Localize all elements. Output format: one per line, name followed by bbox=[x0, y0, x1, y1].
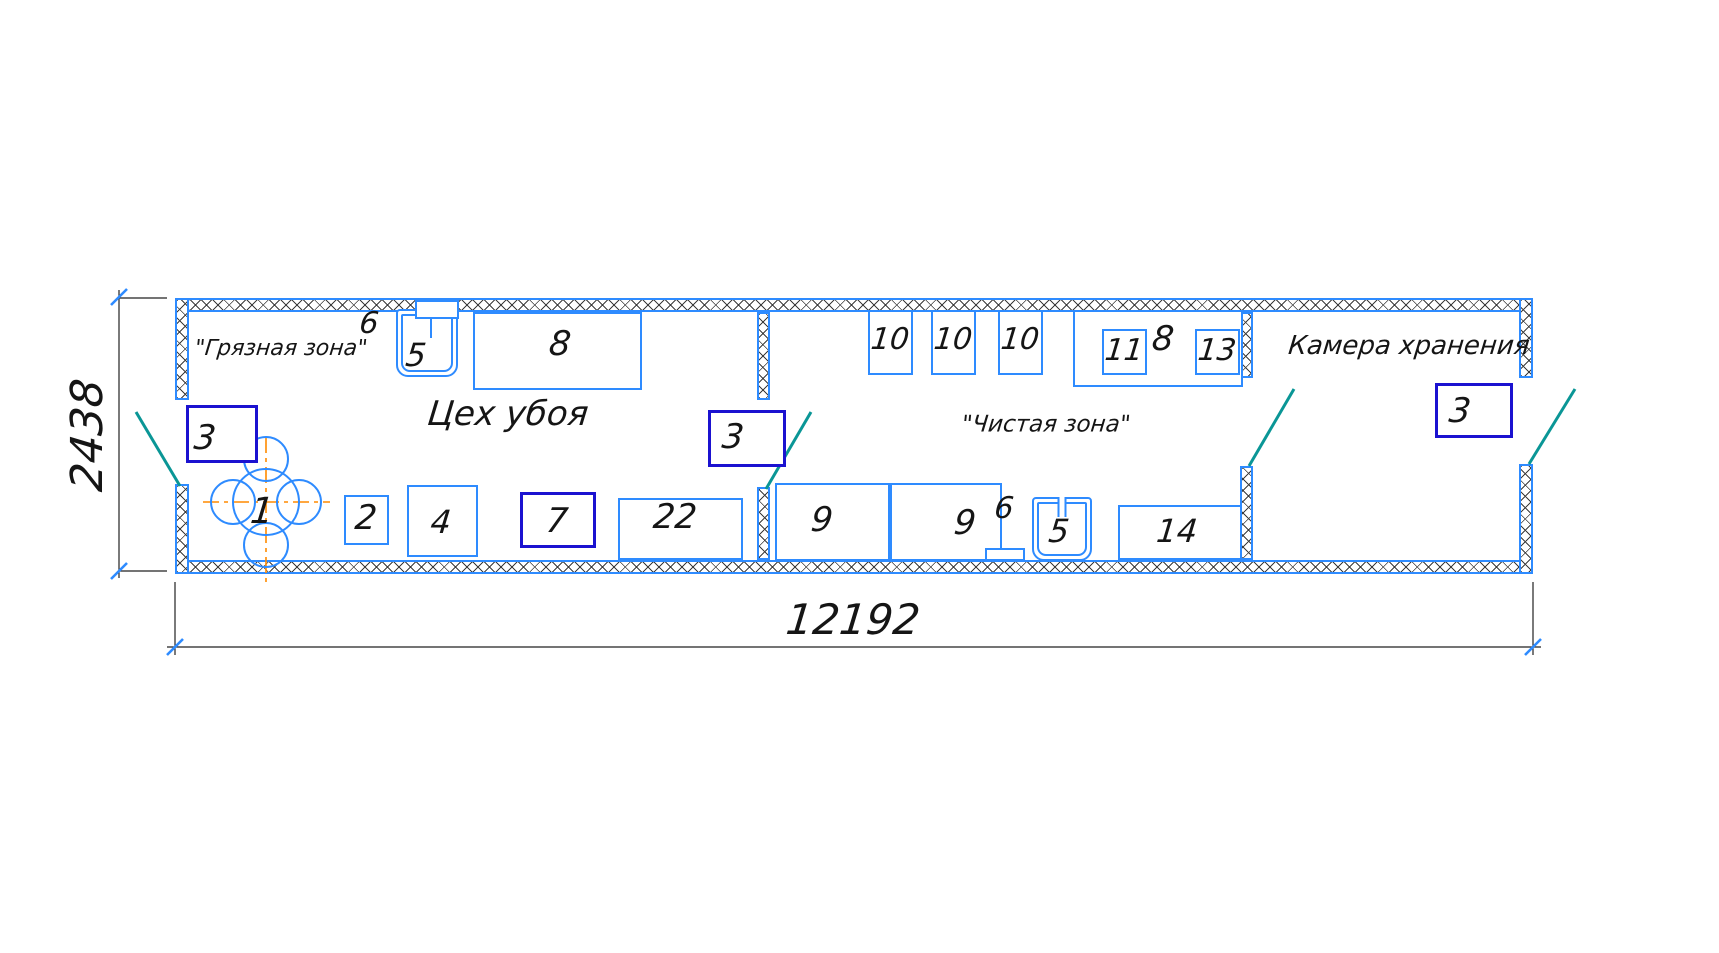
equipment-label-11: 11 bbox=[1103, 336, 1144, 366]
equipment-label-8: 8 bbox=[1150, 322, 1175, 356]
equipment-label-9: 9 bbox=[809, 503, 834, 537]
equipment-label-22: 22 bbox=[652, 500, 699, 534]
room-label-storage-chamber: Камера хранения bbox=[1287, 333, 1531, 359]
equipment-label-4: 4 bbox=[429, 506, 453, 538]
equipment-label-10: 10 bbox=[869, 325, 910, 355]
water-heater-symbol bbox=[415, 300, 459, 319]
equipment-label-7: 7 bbox=[544, 504, 569, 538]
floor-plan-canvas: 658"Грязная зона"Цех убоя312472231010101… bbox=[0, 0, 1719, 953]
dimension-height-value: 2438 bbox=[66, 377, 110, 494]
zone-label-clean: "Чистая зона" bbox=[960, 414, 1131, 437]
equipment-label-14: 14 bbox=[1155, 515, 1199, 547]
door-swing-line bbox=[136, 412, 180, 486]
equipment-box-3 bbox=[708, 410, 786, 467]
equipment-label-5: 5 bbox=[404, 339, 428, 371]
faucet-pipe bbox=[430, 318, 432, 338]
equipment-label-1: 1 bbox=[249, 494, 276, 530]
equipment-label-6: 6 bbox=[993, 494, 1015, 524]
equipment-label-8: 8 bbox=[547, 327, 572, 361]
equipment-label-6: 6 bbox=[358, 309, 380, 339]
dimension-width-value: 12192 bbox=[784, 599, 922, 641]
door-swing-line bbox=[1249, 389, 1294, 466]
room-label-slaughter-shop: Цех убоя bbox=[426, 397, 590, 431]
equipment-label-3: 3 bbox=[1447, 394, 1472, 428]
equipment-box bbox=[985, 548, 1025, 561]
equipment-label-3: 3 bbox=[720, 420, 745, 454]
equipment-label-5: 5 bbox=[1047, 515, 1071, 547]
equipment-label-9: 9 bbox=[952, 506, 977, 540]
plan-vector-layer bbox=[0, 0, 1719, 953]
door-swing-line bbox=[1529, 389, 1575, 464]
equipment-label-10: 10 bbox=[999, 325, 1040, 355]
equipment-label-13: 13 bbox=[1196, 336, 1237, 366]
zone-label-dirty: "Грязная зона" bbox=[194, 338, 369, 360]
equipment-label-10: 10 bbox=[932, 325, 973, 355]
equipment-label-3: 3 bbox=[192, 421, 217, 455]
equipment-label-2: 2 bbox=[353, 501, 378, 535]
